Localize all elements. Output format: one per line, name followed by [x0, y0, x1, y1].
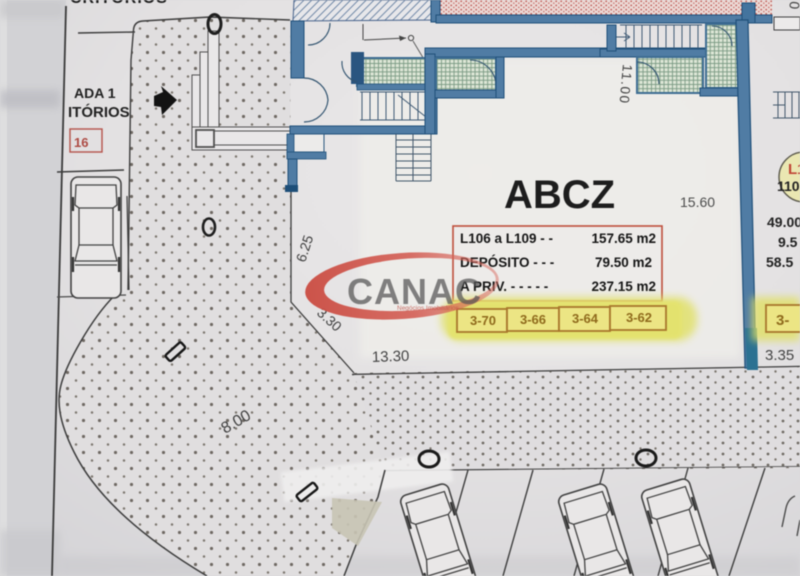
svg-text:13.30: 13.30 [372, 348, 410, 366]
svg-text:58.5: 58.5 [766, 254, 793, 270]
svg-text:L1: L1 [788, 161, 800, 178]
svg-text:3-66: 3-66 [520, 312, 546, 327]
svg-text:3-: 3- [776, 312, 789, 329]
svg-text:9.5: 9.5 [778, 234, 798, 250]
svg-text:CRITÓRIOS: CRITÓRIOS [70, 0, 168, 7]
svg-text:15.60: 15.60 [680, 194, 715, 210]
svg-text:3-62: 3-62 [626, 310, 652, 325]
svg-text:237.15 m2: 237.15 m2 [591, 279, 656, 294]
svg-text:L106 a L109 - -: L106 a L109 - - [460, 231, 553, 246]
svg-text:3-70: 3-70 [470, 313, 496, 328]
svg-text:49.00: 49.00 [767, 214, 800, 230]
svg-text:157.65 m2: 157.65 m2 [591, 231, 656, 246]
svg-text:79.50 m2: 79.50 m2 [595, 255, 652, 270]
svg-text:ITÓRIOS: ITÓRIOS [68, 103, 130, 121]
svg-text:3.35: 3.35 [765, 347, 794, 364]
svg-text:ABCZ: ABCZ [504, 173, 615, 217]
svg-text:3-64: 3-64 [572, 311, 599, 326]
svg-text:110: 110 [777, 178, 800, 194]
svg-text:Negócios Imobiliários: Negócios Imobiliários [397, 305, 460, 312]
svg-text:16: 16 [74, 135, 88, 150]
svg-text:ADA 1: ADA 1 [74, 85, 116, 101]
